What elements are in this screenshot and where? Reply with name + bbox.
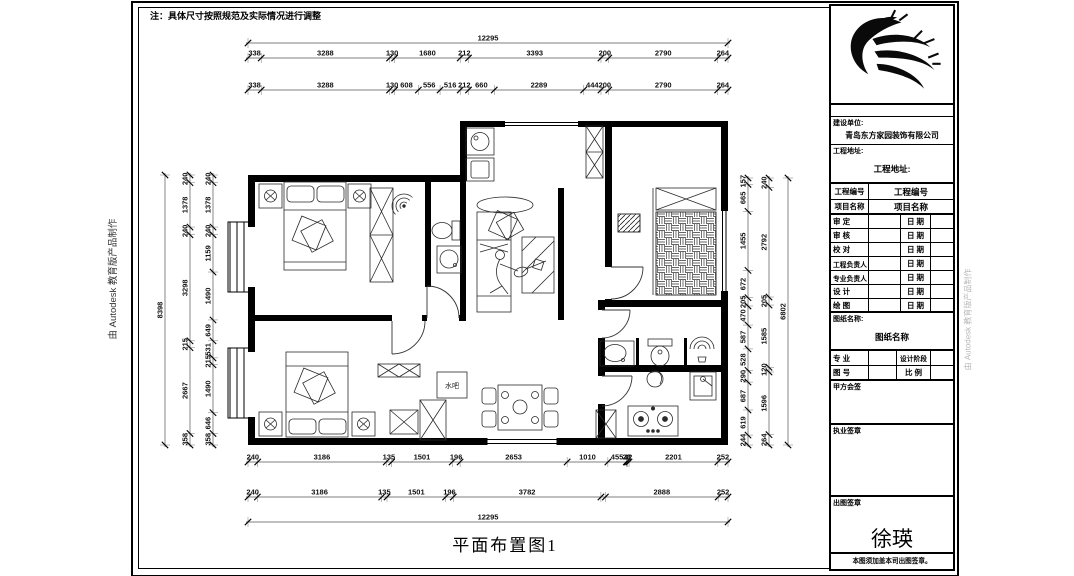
svg-text:338: 338 [248,81,261,90]
project-no-label: 工程编号 [831,184,869,199]
date-label: 日 期 [901,285,931,298]
row-blank [869,243,901,256]
svg-text:358: 358 [204,433,213,446]
company-row: 建设单位: 青岛东方家园装饰有限公司 [831,117,953,145]
date-label: 日 期 [901,215,931,228]
svg-text:2653: 2653 [505,453,522,462]
svg-text:358: 358 [181,433,190,446]
svg-text:2790: 2790 [655,49,672,58]
row-blank [869,299,901,311]
svg-text:130: 130 [386,49,399,58]
svg-text:1159: 1159 [204,245,213,261]
svg-text:42: 42 [624,453,632,462]
kettle-icon [647,371,663,387]
company-name: 青岛东方家园装饰有限公司 [831,130,953,141]
svg-text:660: 660 [475,81,488,90]
svg-text:2289: 2289 [531,81,548,90]
svg-text:130: 130 [386,81,399,90]
svg-text:240: 240 [181,225,190,238]
svg-text:3782: 3782 [519,488,536,497]
dim-chain-bottom_row2: 2403186135150119637822888252 [245,488,731,503]
spacer-row [831,105,953,117]
design-row: 设 计 日 期 [831,285,953,299]
scale-label: 比 例 [897,366,931,379]
svg-text:516: 516 [444,81,457,90]
row-blank [869,215,901,228]
dining-table-icon [482,385,558,430]
svg-text:470: 470 [739,309,748,322]
major-row: 专 业 设计阶段 [831,351,953,366]
svg-text:215: 215 [181,338,190,351]
svg-text:2790: 2790 [655,81,672,90]
svg-text:587: 587 [739,331,748,344]
shower-icon [690,337,714,362]
svg-text:264: 264 [717,81,730,90]
wardrobe-top-icon [370,188,393,282]
row-blank [869,351,897,365]
svg-text:338: 338 [248,49,261,58]
svg-text:120: 120 [760,363,769,376]
row-blank [869,257,901,270]
draft-row: 绘 图 日 期 [831,299,953,313]
signature: 徐瑛 [831,523,953,553]
check-row: 审 核 日 期 [831,229,953,243]
svg-text:444: 444 [586,81,599,90]
svg-text:3186: 3186 [311,488,328,497]
svg-text:2792: 2792 [760,234,769,251]
project-no-row: 工程编号 工程编号 [831,184,953,200]
svg-text:12295: 12295 [478,34,499,43]
nightstand-icons-bottom [259,412,375,436]
practice-seal-label: 执业签章 [833,426,861,436]
company-logo [831,6,949,101]
svg-text:205: 205 [760,295,769,308]
row-blank [869,285,901,298]
date-label: 日 期 [901,299,931,311]
kitchen-sink-icon [690,372,716,400]
svg-text:12295: 12295 [478,513,499,522]
major-lead-row: 专业负责人 日 期 [831,271,953,285]
project-no-value: 工程编号 [869,184,953,199]
approve-row: 审 定 日 期 [831,215,953,229]
svg-text:135: 135 [383,453,396,462]
drawing-name-value: 图纸名称 [831,331,953,343]
row-blank [869,229,901,242]
svg-text:244: 244 [739,433,748,446]
row-label: 审 核 [831,229,869,242]
svg-text:135: 135 [378,488,391,497]
svg-text:290: 290 [739,370,748,383]
row-label: 专业负责人 [831,271,869,284]
bed-bottom-icon [286,352,348,437]
date-label: 日 期 [901,271,931,284]
dim-chain-left_total: 8398 [156,172,171,448]
svg-text:3288: 3288 [317,81,334,90]
row-blank [869,366,897,379]
fig-no-label: 图 号 [831,366,869,379]
svg-text:649: 649 [204,324,213,337]
row-label: 设 计 [831,285,869,298]
svg-text:608: 608 [400,81,413,90]
dim-chain-bottom_total: 12295 [245,513,731,528]
date-label: 日 期 [901,229,931,242]
drawing-sheet: 注：具体尺寸按照规范及实际情况进行调整 由 Autodesk 教育版产品制作 由… [0,0,1074,576]
cabinet-cluster-icons [378,364,446,440]
row-label: 校 对 [831,243,869,256]
svg-text:212: 212 [458,81,471,90]
nightstand-icons-top [259,184,371,208]
issue-seal-row: 出图签章 徐瑛 [831,497,953,554]
svg-text:619: 619 [739,416,748,429]
sink-top-icon [437,246,461,273]
proof-row: 校 对 日 期 [831,243,953,257]
project-name-value: 项目名称 [869,200,953,213]
practice-seal-row: 执业签章 [831,425,953,497]
svg-text:531: 531 [204,343,213,356]
svg-text:196: 196 [450,453,463,462]
logo-box [831,6,953,105]
date-label: 日 期 [901,257,931,270]
row-label: 审 定 [831,215,869,228]
svg-text:3393: 3393 [526,49,543,58]
svg-text:215: 215 [204,355,213,368]
svg-text:200: 200 [599,81,612,90]
proj-lead-row: 工程负责人 日 期 [831,257,953,271]
svg-text:252: 252 [717,453,730,462]
washbasin-icon [600,341,634,366]
svg-text:3298: 3298 [181,279,190,296]
cabinet-x-right-icon [656,188,716,210]
floor-drain-icon [618,214,640,232]
svg-text:2201: 2201 [665,453,682,462]
svg-text:665: 665 [739,192,748,205]
svg-text:212: 212 [458,49,471,58]
svg-text:646: 646 [204,417,213,430]
dim-chain-top_row1: 3383288130168021233932002790264 [245,49,731,64]
address-row: 工程地址: 工程地址: [831,145,953,184]
svg-text:252: 252 [717,488,730,497]
svg-text:3186: 3186 [314,453,331,462]
washing-machine-icon [466,128,494,155]
svg-text:1585: 1585 [760,328,769,345]
svg-text:200: 200 [599,49,612,58]
svg-text:2667: 2667 [181,382,190,399]
svg-text:205: 205 [739,296,748,309]
svg-text:687: 687 [739,390,748,403]
drawing-name-row: 图纸名称: 图纸名称 [831,313,953,351]
dim-chain-left_mid: 240137824032982152667358 [181,172,196,448]
issue-seal-label: 出图签章 [833,498,861,508]
mirror-icon [522,237,554,293]
drawing-name-label: 图纸名称: [833,314,863,324]
svg-text:1501: 1501 [414,453,431,462]
svg-text:240: 240 [246,488,259,497]
svg-text:196: 196 [443,488,456,497]
svg-text:157: 157 [739,175,748,188]
address-label: 工程地址: [833,146,863,156]
svg-text:3288: 3288 [317,49,334,58]
svg-text:528: 528 [739,353,748,366]
date-label: 日 期 [901,243,931,256]
address-value: 工程地址: [831,163,953,175]
svg-text:1378: 1378 [204,197,213,214]
dim-chain-bottom_row1: 240318613515011962653101045528422201252 [245,453,731,468]
svg-text:556: 556 [423,81,436,90]
svg-text:6802: 6802 [779,303,788,320]
svg-text:240: 240 [204,173,213,186]
dim-chain-top_row2: 3383288130608556516212660228944420027902… [245,81,731,96]
dim-chain-top_total: 12295 [245,34,731,49]
svg-text:1490: 1490 [204,380,213,397]
dim-chain-left_inner: 2401378240115914906495312151490646358 [204,172,219,448]
svg-text:264: 264 [717,49,730,58]
stove-icon [628,406,678,436]
piano-area-icon [477,197,546,312]
dim-chain-right_inner: 1576651455672205470587528290687619244 [739,175,754,448]
dim-chain-right_mid: 240279220515851201596264 [760,175,775,448]
svg-text:1501: 1501 [408,488,425,497]
svg-text:1455: 1455 [739,233,748,250]
project-name-label: 项目名称 [831,200,869,213]
toilet-right-icon [648,339,672,366]
title-block: 建设单位: 青岛东方家园装饰有限公司 工程地址: 工程地址: 工程编号 工程编号… [829,4,955,571]
svg-text:1378: 1378 [181,197,190,214]
party-a-label: 甲方会签 [833,382,861,392]
svg-text:240: 240 [760,176,769,189]
svg-text:2888: 2888 [653,488,670,497]
row-blank [869,271,901,284]
svg-text:455: 455 [611,453,624,462]
bed-top-icon [284,182,346,270]
project-name-row: 项目名称 项目名称 [831,200,953,215]
footer-note: 本图须加盖本司出图签章。 [831,554,953,565]
party-a-row: 甲方会签 [831,381,953,425]
tower-closet-icon [586,126,603,178]
water-bar-label: 水吧 [445,381,459,390]
major-label: 专 业 [831,351,869,365]
stage-label: 设计阶段 [897,351,931,365]
svg-text:8398: 8398 [156,302,165,319]
row-label: 绘 图 [831,299,869,311]
svg-text:1596: 1596 [760,395,769,412]
svg-text:240: 240 [247,453,260,462]
svg-text:1010: 1010 [579,453,596,462]
svg-text:672: 672 [739,278,748,291]
svg-text:1490: 1490 [204,288,213,305]
svg-text:1680: 1680 [419,49,436,58]
tatami-mat-icon [656,212,716,295]
row-label: 工程负责人 [831,257,869,270]
appliance-icon [466,158,494,181]
water-bar-icon: 水吧 [437,372,467,398]
svg-text:240: 240 [181,173,190,186]
company-label: 建设单位: [833,118,863,128]
fig-no-row: 图 号 比 例 [831,366,953,381]
svg-text:264: 264 [760,433,769,446]
svg-text:240: 240 [204,225,213,238]
dim-chain-right_total: 6802 [779,175,794,448]
toilet-top-icon [432,221,460,240]
